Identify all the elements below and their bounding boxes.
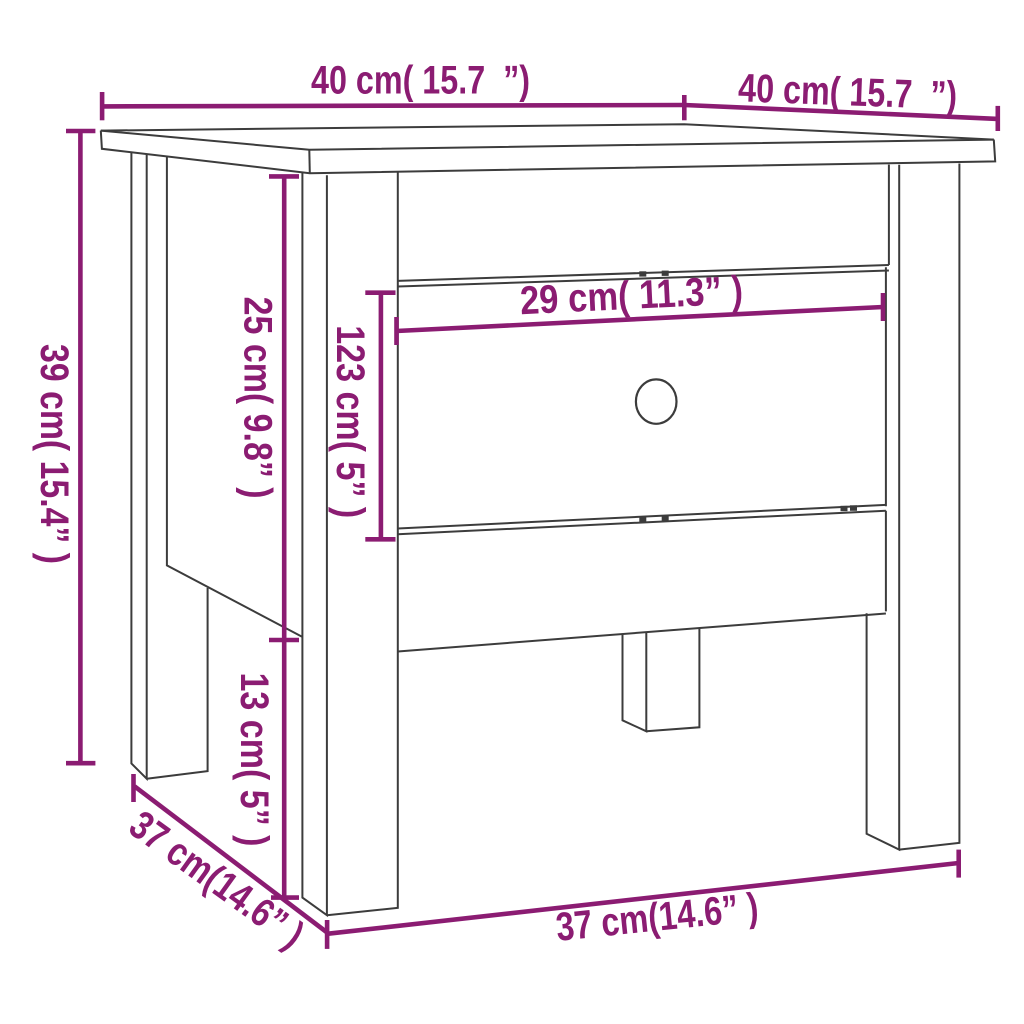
svg-text:40 cm( 15.7 ”): 40 cm( 15.7 ”) bbox=[311, 59, 530, 103]
svg-text:123 cm( 5” ): 123 cm( 5” ) bbox=[328, 325, 372, 518]
svg-text:39 cm( 15.4” ): 39 cm( 15.4” ) bbox=[32, 344, 76, 564]
svg-text:40 cm( 15.7 ”): 40 cm( 15.7 ”) bbox=[737, 66, 957, 118]
svg-text:13 cm( 5” ): 13 cm( 5” ) bbox=[232, 673, 276, 847]
svg-text:25 cm( 9.8” ): 25 cm( 9.8” ) bbox=[235, 297, 279, 499]
